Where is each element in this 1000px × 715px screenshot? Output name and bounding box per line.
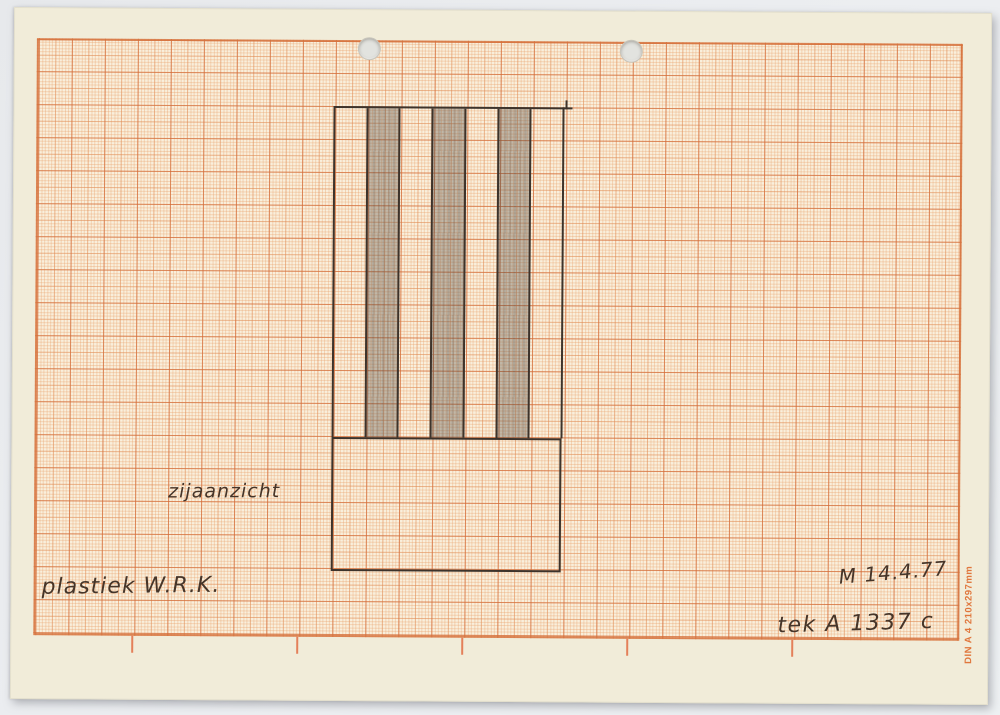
column-7 [530,109,563,438]
margin-tick [791,640,793,657]
drawing-ref-label: tek A 1337 c [777,609,935,639]
punch-hole-left [358,37,381,60]
margin-tick [626,639,628,656]
graph-paper-sheet: zijaanzicht plastiek W.R.K. M 14.4.77 te… [10,7,992,705]
scan-background: zijaanzicht plastiek W.R.K. M 14.4.77 te… [0,0,1000,715]
column-4-shaded [432,109,467,438]
column-5 [464,109,499,438]
column-6-shaded [497,109,532,438]
base-rectangle [331,437,562,572]
column-3 [399,108,434,437]
view-label: zijaanzicht [168,480,280,502]
artwork-label: plastiek W.R.K. [41,573,220,600]
column-2-shaded [366,108,401,437]
pencil-corner-tick [566,100,568,109]
column-1 [334,108,369,437]
striped-elevation [332,106,565,438]
margin-tick [131,636,133,653]
margin-tick [461,638,463,655]
paper-spec-text: DIN A 4 210x297mm [963,552,975,664]
margin-tick [296,637,298,654]
punch-hole-right [620,40,643,63]
